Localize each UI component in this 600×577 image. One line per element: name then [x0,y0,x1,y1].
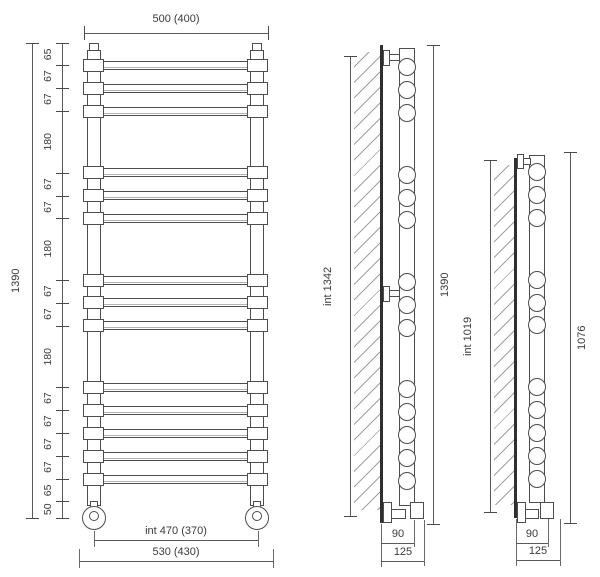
segment-label: 67 [40,456,56,479]
segment-chain-tick [56,387,69,388]
bar-joint-right [247,166,268,179]
towel-bar-highlight [102,220,249,221]
bar-joint-left [83,105,104,118]
segment-chain-tick [56,196,69,197]
bar-joint-right [247,319,268,332]
tall-top-bracket-arm [389,54,400,61]
rung-circle [398,296,416,314]
rung-circle [398,319,416,337]
rung-circle [528,271,546,289]
short-height-tick-bottom [564,523,577,524]
short-depth-ext-125 [560,519,561,566]
bar-joint-right [247,381,268,394]
bar-joint-right [247,427,268,440]
short-90-dim-line [516,543,548,544]
tall-depth-ext-125 [424,520,425,566]
bar-joint-left [83,381,104,394]
towel-bar-highlight [102,67,249,68]
bar-joint-left [83,166,104,179]
towel-bar-highlight [102,282,249,283]
overall-width-ext-left [79,549,80,568]
rung-circle [528,294,546,312]
segment-chain-tick [56,280,69,281]
front-top-dim-line [84,33,268,34]
segment-label: 67 [40,433,56,456]
segment-chain-tick [56,88,69,89]
towel-bar-highlight [102,458,249,459]
segment-label: 67 [40,88,56,111]
segment-chain-tick [56,65,69,66]
tall-125-dim-line [381,561,424,562]
bar-joint-left [83,274,104,287]
tall-wall-offset-label: 90 [378,528,418,540]
segment-label: 67 [40,410,56,433]
rung-circle [528,209,546,227]
bar-joint-right [247,274,268,287]
rung-circle [398,166,416,184]
bar-joint-left [83,319,104,332]
short-wall-offset-label: 90 [512,528,552,540]
tall-int-tick-bottom [344,516,357,517]
technical-drawing-canvas: 500 (400) 1390 int 470 (370) 530 (430) [0,0,600,577]
short-wall-face [514,158,517,518]
bar-joint-right [247,404,268,417]
segment-chain-tick [56,218,69,219]
front-height-dim-tick-bottom [26,518,39,519]
front-height-dim-line [32,43,33,518]
short-125-dim-line [516,560,560,561]
rung-circle [528,378,546,396]
segment-label: 67 [40,173,56,196]
short-top-bracket-arm [523,158,531,165]
tall-wall-hatch [354,52,380,510]
front-top-width-label: 500 (400) [120,13,232,25]
towel-bar-highlight [102,197,249,198]
segment-label: 67 [40,196,56,219]
towel-bar-highlight [102,481,249,482]
tall-inner-height-label: int 1342 [320,56,336,516]
rung-circle [528,470,546,488]
towel-bar [101,168,250,177]
segment-label: 67 [40,387,56,410]
segment-chain-tick [56,410,69,411]
towel-bar-highlight [102,304,249,305]
towel-bar [101,84,250,93]
segment-chain-tick [56,501,69,502]
segment-chain-tick [56,111,69,112]
rung-circle [398,273,416,291]
short-overall-height-label: 1076 [574,152,590,523]
short-int-dim-line [490,160,491,512]
tall-bottom-elbow-fitting [410,502,424,519]
bar-joint-right [247,105,268,118]
overall-width-ext-right [273,549,274,568]
segment-chain-tick [56,518,69,519]
bar-joint-right [247,189,268,202]
tall-mid-bracket-arm [389,290,400,297]
towel-bar-highlight [102,327,249,328]
segment-label: 180 [40,111,56,173]
segment-label: 65 [40,43,56,65]
tall-overall-height-label: 1390 [437,45,453,524]
tall-height-dim-line [433,45,434,524]
int-width-ext-left [94,531,95,547]
segment-label: 65 [40,479,56,501]
bar-joint-left [83,427,104,440]
towel-bar [101,383,250,392]
front-overall-width-label: 530 (430) [120,546,232,558]
front-height-dim-tick-top [26,43,39,44]
tall-90-dim-line [381,543,414,544]
left-pipe-rosette-inner [89,511,99,521]
front-overall-height-label: 1390 [8,43,24,518]
segment-label: 67 [40,280,56,303]
bar-joint-left [83,296,104,309]
towel-bar [101,429,250,438]
bar-joint-left [83,404,104,417]
rung-circle [398,104,416,122]
towel-bar-highlight [102,90,249,91]
rung-circle [528,447,546,465]
rung-circle [528,401,546,419]
bar-joint-right [247,473,268,486]
segment-label: 180 [40,218,56,280]
bar-joint-left [83,473,104,486]
towel-bar [101,452,250,461]
rung-circle [528,424,546,442]
towel-bar [101,321,250,330]
towel-bar [101,475,250,484]
short-wall-hatch [494,165,515,505]
segment-chain-tick [56,43,69,44]
towel-bar [101,191,250,200]
towel-bar [101,276,250,285]
towel-bar [101,107,250,116]
rung-circle [398,449,416,467]
int-width-ext-right [258,531,259,547]
bar-joint-right [247,59,268,72]
front-top-dim-tick-right [268,26,269,40]
segment-chain-tick [56,456,69,457]
right-pipe-rosette-inner [252,511,262,521]
segment-label: 50 [40,501,56,518]
short-bottom-elbow-fitting [540,502,554,519]
segment-chain-tick [56,479,69,480]
short-bottom-bracket-arm [525,509,539,519]
front-inner-width-label: int 470 (370) [120,525,232,537]
bar-joint-left [83,59,104,72]
bar-joint-left [83,212,104,225]
short-inner-height-label: int 1019 [460,160,476,512]
rung-circle [398,472,416,490]
segment-chain-tick [56,173,69,174]
towel-bar-highlight [102,435,249,436]
segment-chain-tick [56,326,69,327]
tall-wall-face [380,45,383,523]
tall-overall-depth-label: 125 [376,546,430,558]
towel-bar-highlight [102,412,249,413]
int-width-dim-line [94,540,258,541]
short-height-dim-line [570,152,571,523]
bar-joint-right [247,450,268,463]
towel-bar [101,61,250,70]
bar-joint-left [83,82,104,95]
towel-bar-highlight [102,174,249,175]
segment-label: 67 [40,65,56,88]
segment-chain-tick [56,433,69,434]
short-int-tick-top [484,160,497,161]
front-top-dim-tick-left [84,26,85,40]
short-int-tick-bottom [484,512,497,513]
short-overall-depth-label: 125 [511,545,565,557]
overall-width-dim-line [79,561,273,562]
towel-bar-highlight [102,389,249,390]
towel-bar [101,214,250,223]
bar-joint-right [247,296,268,309]
towel-bar [101,406,250,415]
tall-bottom-bracket-arm [391,509,406,519]
tall-height-tick-bottom [427,524,440,525]
towel-bar-highlight [102,113,249,114]
towel-bar [101,298,250,307]
segment-chain-tick [56,303,69,304]
bar-joint-right [247,82,268,95]
bar-joint-left [83,450,104,463]
segment-label: 67 [40,303,56,326]
bar-joint-right [247,212,268,225]
segment-label: 180 [40,326,56,388]
tall-int-dim-line [350,56,351,516]
bar-joint-left [83,189,104,202]
rung-circle [398,189,416,207]
